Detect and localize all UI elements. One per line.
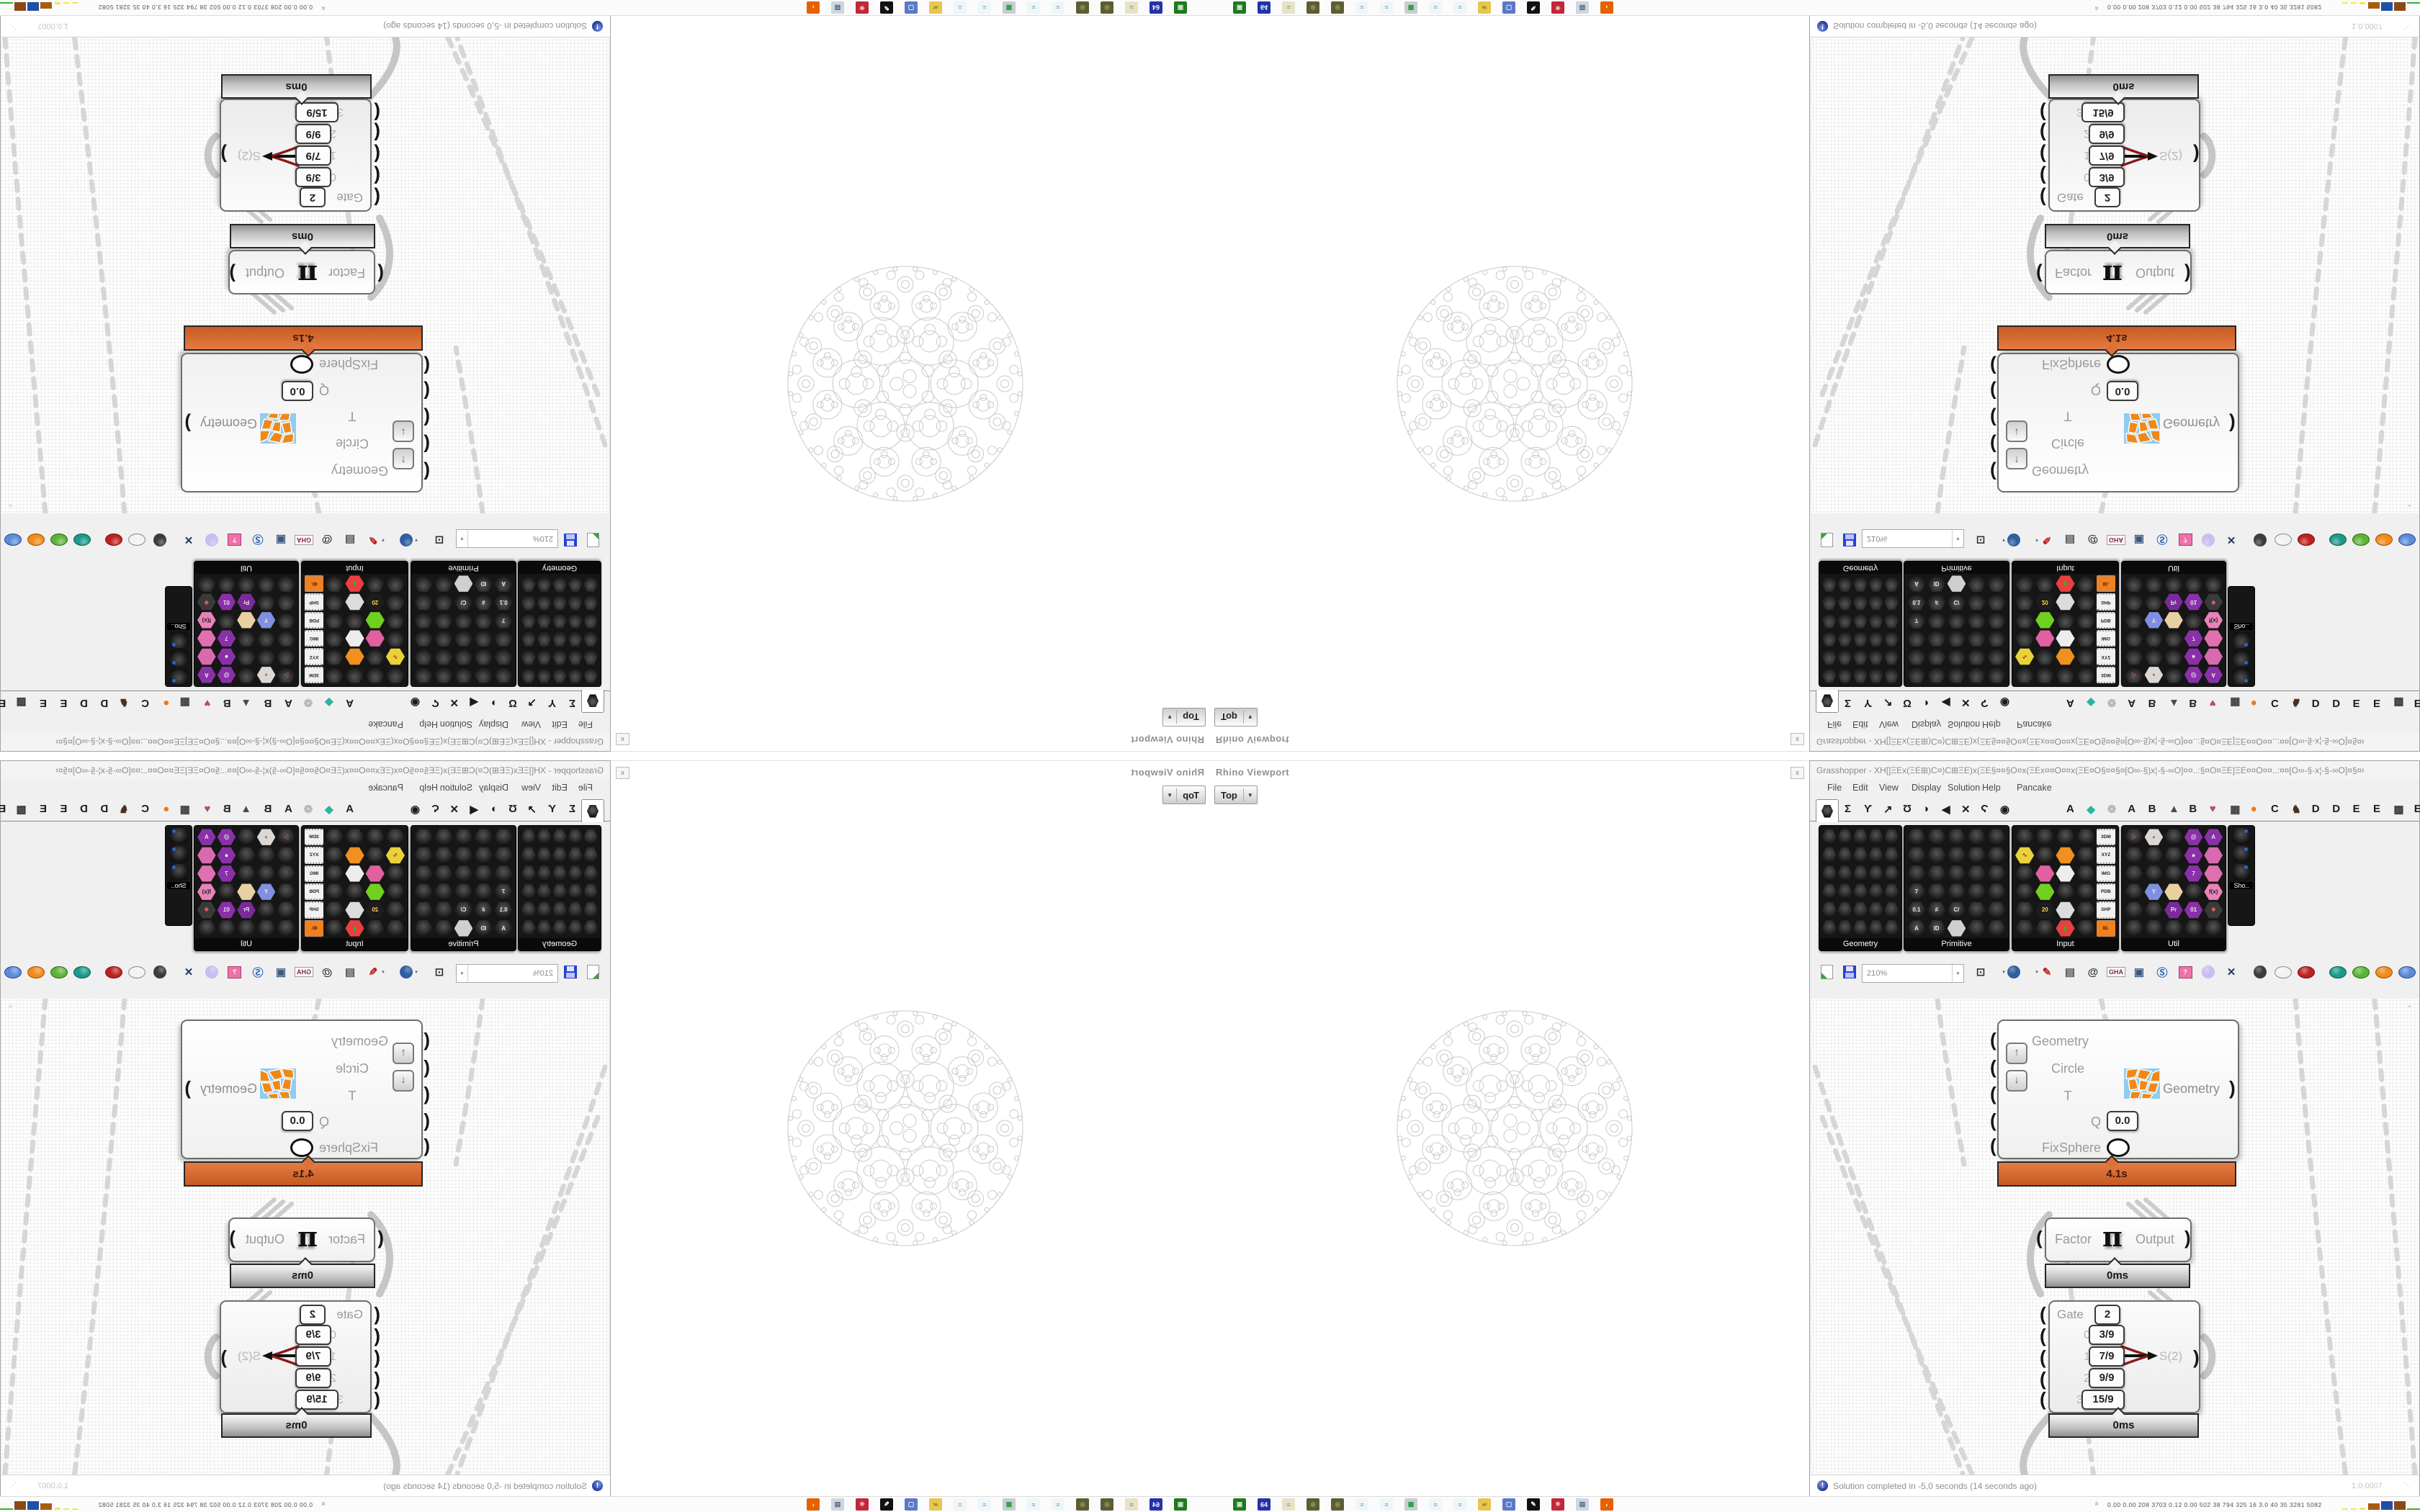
preview-orange-icon[interactable] — [2375, 531, 2393, 549]
menu-item-pancake[interactable]: Pancake — [368, 783, 403, 793]
component-icon[interactable] — [237, 630, 256, 647]
component-icon[interactable]: ● — [257, 667, 276, 683]
component-icon[interactable]: ▷ — [2125, 667, 2143, 683]
component-icon[interactable] — [1822, 847, 1837, 863]
pi-factor-component[interactable]: Factor π Output — [2045, 250, 2192, 294]
component-icon[interactable] — [521, 648, 536, 665]
component-icon[interactable] — [1967, 593, 1986, 610]
tab-glyph-6[interactable]: ✕ — [449, 696, 459, 709]
component-icon[interactable] — [537, 630, 552, 647]
component-icon[interactable] — [1884, 575, 1899, 592]
component-icon[interactable] — [2125, 630, 2143, 647]
component-icon[interactable] — [583, 920, 598, 937]
q-value-box[interactable]: 0.0 — [2107, 381, 2138, 401]
input-grip[interactable]: ( — [2036, 1230, 2043, 1245]
system-monitor-icon[interactable]: ▦ — [1003, 1498, 1016, 1511]
arrow-down-icon[interactable]: ↓ — [393, 420, 414, 442]
component-icon[interactable] — [1838, 575, 1852, 592]
component-icon[interactable] — [1853, 901, 1868, 918]
notepad-icon[interactable]: ≡ — [1380, 1, 1393, 14]
component-icon[interactable] — [434, 612, 453, 629]
tab-letter-16[interactable]: ▩ — [16, 803, 26, 816]
coin-icon[interactable]: ◉ — [1101, 1, 1113, 14]
preview-green-icon[interactable] — [50, 531, 68, 549]
output-grip[interactable]: ) — [229, 1230, 236, 1245]
component-icon[interactable]: ๑ — [2184, 847, 2203, 863]
component-icon[interactable] — [474, 847, 493, 863]
tab-letter-0[interactable]: A — [2066, 697, 2074, 709]
menu-item-file[interactable]: File — [1827, 719, 1842, 729]
tab-glyph-0[interactable]: Σ — [1845, 697, 1851, 709]
output-grip[interactable]: ) — [220, 148, 227, 162]
component-icon[interactable]: 0.1 — [494, 593, 513, 610]
component-icon[interactable] — [1884, 883, 1899, 900]
input-grip[interactable]: ( — [2040, 1372, 2046, 1386]
component-icon[interactable] — [1869, 593, 1883, 610]
component-icon[interactable]: 7 — [494, 612, 513, 629]
preview-blue-icon[interactable] — [4, 531, 22, 549]
component-icon[interactable] — [2035, 847, 2054, 863]
component-icon[interactable] — [2164, 883, 2183, 900]
system-monitor-icon[interactable]: ▦ — [1404, 1498, 1417, 1511]
component-icon[interactable]: ▷ — [2125, 829, 2143, 845]
input-grip[interactable]: ( — [2040, 169, 2046, 184]
menu-item-view[interactable]: View — [1879, 783, 1899, 793]
component-icon[interactable] — [386, 920, 405, 937]
gate-component[interactable]: Gate 2 S(2) 03/917/929/9315/9 — [2048, 99, 2200, 212]
fixsphere-component[interactable]: ↑ ↓ Geometry Circle T Q FixSphere 0.0 — [1997, 353, 2239, 492]
palette-group-label[interactable]: Primitive — [1904, 562, 2009, 574]
coin-icon[interactable]: ◉ — [1307, 1, 1319, 14]
component-icon[interactable] — [2056, 829, 2074, 845]
fixsphere-toggle[interactable] — [290, 1138, 313, 1157]
chevron-down-icon[interactable]: ▾ — [457, 530, 468, 547]
component-icon[interactable]: C/ — [454, 593, 473, 610]
component-icon[interactable] — [494, 667, 513, 683]
component-icon[interactable] — [1838, 920, 1852, 937]
component-icon[interactable] — [366, 612, 385, 629]
component-icon[interactable]: ▮ — [2056, 575, 2074, 592]
palette-group-label[interactable]: Util — [2122, 562, 2226, 574]
viewport-close-button[interactable]: x — [616, 733, 629, 745]
notepad-icon[interactable]: ≡ — [1380, 1498, 1393, 1511]
component-icon[interactable] — [568, 883, 583, 900]
component-icon[interactable] — [1967, 920, 1986, 937]
gate-value-box[interactable]: 2 — [2094, 187, 2120, 207]
input-grip[interactable]: ( — [423, 411, 430, 426]
component-icon[interactable] — [2125, 612, 2143, 629]
component-icon[interactable] — [474, 865, 493, 882]
flyout-icon[interactable] — [2233, 864, 2250, 880]
menu-item-edit[interactable]: Edit — [1852, 719, 1868, 729]
output-grip[interactable]: ) — [2229, 417, 2236, 431]
memory-card-icon[interactable]: ▣ — [1233, 1498, 1246, 1511]
component-icon[interactable] — [2184, 575, 2203, 592]
component-icon[interactable] — [386, 612, 405, 629]
preview-eye-icon[interactable] — [2004, 531, 2023, 549]
component-icon[interactable] — [345, 901, 364, 918]
pen-app-icon[interactable]: ✎ — [1527, 1498, 1540, 1511]
component-icon[interactable]: IMG — [2097, 630, 2115, 647]
gha-badge-icon[interactable]: GHA — [2107, 531, 2125, 549]
component-icon[interactable] — [1838, 593, 1852, 610]
tab-glyph-8[interactable]: ◉ — [2000, 803, 2009, 816]
component-icon[interactable] — [521, 883, 536, 900]
coin-icon[interactable]: ◉ — [1307, 1498, 1319, 1511]
tab-letter-11[interactable]: ♞ — [119, 803, 128, 816]
component-icon[interactable] — [1822, 901, 1837, 918]
tab-glyph-5[interactable]: ◀ — [470, 803, 478, 816]
tab-glyph-8[interactable]: ◉ — [2000, 696, 2009, 709]
component-icon[interactable]: @ — [2184, 667, 2203, 683]
tab-letter-15[interactable]: E — [2373, 803, 2380, 815]
component-icon[interactable] — [257, 901, 276, 918]
component-icon[interactable]: 7 — [2184, 865, 2203, 882]
component-icon[interactable]: f(x) — [197, 883, 216, 900]
component-icon[interactable] — [454, 865, 473, 882]
exit-icon[interactable]: ▤ — [341, 531, 359, 549]
resize-grip-icon[interactable]: ⋱ — [9, 22, 17, 30]
red-app-icon[interactable]: ✳ — [1551, 1498, 1564, 1511]
gate-row-value-box[interactable]: 7/9 — [295, 145, 331, 166]
component-icon[interactable] — [1927, 829, 1946, 845]
component-icon[interactable] — [386, 630, 405, 647]
component-icon[interactable] — [434, 593, 453, 610]
component-icon[interactable]: A — [2204, 667, 2223, 683]
component-icon[interactable] — [325, 575, 344, 592]
resize-grip-icon[interactable]: ⋱ — [2403, 1482, 2411, 1490]
input-grip[interactable]: ( — [374, 169, 380, 184]
component-icon[interactable]: f(x) — [2204, 883, 2223, 900]
component-icon[interactable] — [2076, 883, 2095, 900]
component-icon[interactable] — [1884, 901, 1899, 918]
gate-row-value-box[interactable]: 7/9 — [295, 1346, 331, 1367]
component-icon[interactable] — [1907, 630, 1926, 647]
layers-icon[interactable]: ▣ — [2130, 963, 2148, 981]
component-icon[interactable] — [414, 829, 433, 845]
component-icon[interactable] — [1967, 612, 1986, 629]
package-icon[interactable]: ? — [2176, 963, 2195, 981]
viewport-view-dropdown[interactable]: Top ▼ — [1214, 786, 1258, 804]
component-icon[interactable]: Pr — [2164, 593, 2183, 610]
tab-letter-9[interactable]: ● — [163, 803, 169, 815]
node-canvas[interactable]: ⌄ ↑ ↓ Geometry Circle T Q FixSphere 0.0 — [1811, 999, 2419, 1475]
zoom-level-combo[interactable]: 210% ▾ — [1862, 529, 1964, 548]
search-s-icon[interactable]: Ⓢ — [248, 963, 267, 981]
component-icon[interactable] — [494, 847, 513, 863]
memory-card-icon[interactable]: ▣ — [1233, 1, 1246, 14]
tab-letter-13[interactable]: D — [2332, 803, 2340, 815]
gha-badge-icon[interactable]: GHA — [295, 531, 313, 549]
component-icon[interactable] — [1838, 865, 1852, 882]
input-grip[interactable]: ( — [1990, 1032, 1996, 1047]
component-icon[interactable] — [1948, 630, 1966, 647]
zoom-level-combo[interactable]: 210% ▾ — [456, 529, 558, 548]
component-icon[interactable] — [1853, 593, 1868, 610]
mesh-sphere-dark-icon[interactable] — [2251, 531, 2269, 549]
output-grip[interactable]: ) — [2193, 1350, 2200, 1364]
folder-icon[interactable]: ▰ — [1478, 1, 1491, 14]
component-icon[interactable] — [325, 865, 344, 882]
component-icon[interactable] — [2204, 920, 2223, 937]
component-icon[interactable] — [277, 920, 295, 937]
component-icon[interactable] — [521, 920, 536, 937]
component-icon[interactable] — [1927, 865, 1946, 882]
fixsphere-toggle[interactable] — [2107, 1138, 2130, 1157]
component-icon[interactable] — [1822, 575, 1837, 592]
tab-letter-14[interactable]: E — [2353, 697, 2360, 709]
palette-group-label[interactable]: Input — [2012, 938, 2118, 950]
component-icon[interactable] — [1822, 667, 1837, 683]
component-icon[interactable]: A — [494, 920, 513, 937]
component-icon[interactable] — [1967, 847, 1986, 863]
component-icon[interactable] — [1822, 612, 1837, 629]
component-icon[interactable] — [2145, 593, 2164, 610]
component-icon[interactable] — [568, 593, 583, 610]
component-icon[interactable] — [386, 575, 405, 592]
tab-glyph-8[interactable]: ◉ — [411, 696, 420, 709]
notepad-icon[interactable]: ≡ — [1027, 1, 1040, 14]
viewport-close-button[interactable]: x — [616, 767, 629, 779]
component-icon[interactable] — [414, 593, 433, 610]
component-icon[interactable] — [537, 575, 552, 592]
gha-badge-icon[interactable]: GHA — [295, 963, 313, 981]
input-grip[interactable]: ( — [374, 1350, 380, 1364]
red-app-icon[interactable]: ✳ — [856, 1498, 869, 1511]
component-icon[interactable] — [414, 920, 433, 937]
menu-item-edit[interactable]: Edit — [552, 783, 568, 793]
input-grip[interactable]: ( — [1990, 1113, 1996, 1128]
component-icon[interactable] — [494, 865, 513, 882]
tab-glyph-1[interactable]: Ƴ — [1864, 803, 1873, 815]
input-grip[interactable]: ( — [2040, 1392, 2046, 1406]
palette-group-label[interactable]: Primitive — [1904, 938, 2009, 950]
component-icon[interactable] — [277, 847, 295, 863]
component-icon[interactable]: PDB — [2097, 883, 2115, 900]
menu-item-solution[interactable]: Solution — [440, 783, 472, 793]
component-icon[interactable] — [325, 901, 344, 918]
component-icon[interactable] — [237, 829, 256, 845]
component-icon[interactable] — [494, 630, 513, 647]
viewport-close-button[interactable]: x — [1791, 767, 1804, 779]
tab-glyph-7[interactable]: Ϛ — [431, 803, 439, 815]
save-button[interactable] — [1840, 531, 1859, 549]
fixsphere-component[interactable]: ↑ ↓ Geometry Circle T Q FixSphere 0.0 — [181, 1020, 423, 1159]
component-icon[interactable] — [1948, 575, 1966, 592]
flyout-icon[interactable] — [2233, 828, 2250, 844]
maximize-button[interactable] — [14, 764, 28, 777]
menu-item-view[interactable]: View — [1879, 719, 1899, 729]
close-button[interactable] — [2405, 735, 2419, 748]
gate-value-box[interactable]: 2 — [300, 1305, 326, 1325]
component-icon[interactable] — [537, 612, 552, 629]
component-icon[interactable] — [1967, 667, 1986, 683]
component-icon[interactable]: 20 — [2035, 901, 2054, 918]
tab-letter-3[interactable]: A — [2128, 803, 2136, 815]
system-monitor-icon[interactable]: ▦ — [1003, 1, 1016, 14]
tab-glyph-1[interactable]: Ƴ — [547, 803, 556, 815]
tab-letter-11[interactable]: ♞ — [119, 696, 128, 709]
input-grip[interactable]: ( — [2040, 1350, 2046, 1364]
component-icon[interactable] — [2015, 883, 2034, 900]
component-icon[interactable]: ∿ — [2015, 847, 2034, 863]
component-icon[interactable] — [1822, 648, 1837, 665]
component-icon[interactable] — [537, 593, 552, 610]
component-icon[interactable]: IMG — [305, 630, 323, 647]
component-icon[interactable]: ๑ — [218, 648, 236, 665]
component-icon[interactable] — [1927, 612, 1946, 629]
tab-letter-3[interactable]: A — [2128, 697, 2136, 709]
input-grip[interactable]: ( — [2040, 126, 2046, 140]
zoom-level-combo[interactable]: 210% ▾ — [1862, 964, 1964, 983]
gem-red-icon[interactable] — [2297, 531, 2316, 549]
output-grip[interactable]: ) — [229, 267, 236, 282]
arrow-down-icon[interactable]: ↓ — [2006, 420, 2027, 442]
tab-letter-7[interactable]: ♥ — [2210, 803, 2216, 815]
component-icon[interactable] — [2125, 648, 2143, 665]
menu-item-pancake[interactable]: Pancake — [2017, 783, 2052, 793]
component-icon[interactable] — [2164, 865, 2183, 882]
component-icon[interactable] — [2015, 920, 2034, 937]
grasshopper-titlebar[interactable]: Grasshopper - XH[]ΞEx(ΞE⊞)C¤)C⊞ΞE)x(ΞE§¤… — [1, 761, 610, 780]
component-icon[interactable] — [277, 883, 295, 900]
component-icon[interactable] — [521, 847, 536, 863]
component-icon[interactable]: A — [494, 575, 513, 592]
component-icon[interactable]: 01 — [2184, 901, 2203, 918]
component-icon[interactable]: ID — [474, 575, 493, 592]
component-icon[interactable]: ID. — [2097, 575, 2115, 592]
tab-letter-15[interactable]: E — [40, 803, 47, 815]
component-icon[interactable] — [257, 593, 276, 610]
viewport-close-button[interactable]: x — [1791, 733, 1804, 745]
arrow-down-icon[interactable]: ↓ — [393, 1070, 414, 1092]
component-icon[interactable] — [345, 648, 364, 665]
component-icon[interactable]: C/ — [1948, 901, 1966, 918]
tab-letter-5[interactable]: ▲ — [241, 803, 251, 815]
component-icon[interactable] — [474, 667, 493, 683]
component-icon[interactable] — [386, 829, 405, 845]
component-icon[interactable] — [1869, 575, 1883, 592]
notepad-icon[interactable]: ≡ — [1453, 1498, 1466, 1511]
input-grip[interactable]: ( — [374, 191, 380, 205]
package-icon[interactable]: ? — [225, 531, 244, 549]
balloon-icon[interactable] — [2199, 963, 2218, 981]
component-icon[interactable]: ▮ — [2056, 920, 2074, 937]
component-icon[interactable] — [521, 575, 536, 592]
tab-letter-17[interactable]: E — [2414, 803, 2420, 815]
tab-letter-17[interactable]: E — [0, 803, 6, 815]
component-icon[interactable] — [2076, 575, 2095, 592]
mesh-sphere-dark-icon[interactable] — [151, 963, 169, 981]
component-icon[interactable] — [434, 630, 453, 647]
component-icon[interactable] — [568, 667, 583, 683]
galapagos-x-icon[interactable]: ✕ — [179, 531, 198, 549]
component-icon[interactable]: 7 — [218, 630, 236, 647]
folder-icon[interactable]: ▰ — [929, 1498, 942, 1511]
mesh-sphere-dark-icon[interactable] — [2251, 963, 2269, 981]
component-icon[interactable] — [1822, 883, 1837, 900]
minimize-button[interactable] — [2379, 764, 2393, 777]
menu-item-help[interactable]: Help — [1982, 719, 2001, 729]
notepad-icon[interactable]: ≡ — [1355, 1, 1368, 14]
component-icon[interactable] — [2145, 630, 2164, 647]
component-icon[interactable]: ID — [1927, 920, 1946, 937]
component-icon[interactable] — [552, 920, 567, 937]
notepad-icon[interactable]: ≡ — [1453, 1, 1466, 14]
component-icon[interactable] — [2015, 630, 2034, 647]
component-icon[interactable] — [583, 575, 598, 592]
component-icon[interactable] — [1853, 575, 1868, 592]
at-icon[interactable]: @ — [2084, 963, 2102, 981]
tab-letter-7[interactable]: ♥ — [204, 803, 210, 815]
tab-letter-10[interactable]: C — [2271, 803, 2279, 815]
component-icon[interactable] — [568, 901, 583, 918]
component-icon[interactable]: Y — [2145, 883, 2164, 900]
component-icon[interactable] — [2076, 901, 2095, 918]
component-icon[interactable] — [552, 575, 567, 592]
component-icon[interactable] — [2035, 920, 2054, 937]
component-icon[interactable] — [1822, 865, 1837, 882]
component-icon[interactable] — [277, 630, 295, 647]
coin-icon[interactable]: ◉ — [1076, 1, 1089, 14]
tab-letter-1[interactable]: ◆ — [325, 696, 333, 709]
tab-letter-1[interactable]: ◆ — [325, 803, 333, 816]
component-icon[interactable] — [583, 648, 598, 665]
pen-app-icon[interactable]: ✎ — [880, 1, 893, 14]
tab-glyph-0[interactable]: Σ — [1845, 803, 1851, 815]
component-icon[interactable] — [237, 648, 256, 665]
component-icon[interactable] — [2125, 901, 2143, 918]
preview-blue-icon[interactable] — [2398, 963, 2416, 981]
menu-item-edit[interactable]: Edit — [1852, 783, 1868, 793]
component-icon[interactable] — [277, 612, 295, 629]
tab-letter-9[interactable]: ● — [2251, 803, 2257, 815]
component-icon[interactable] — [474, 883, 493, 900]
maximize-button[interactable] — [2392, 735, 2406, 748]
tab-letter-11[interactable]: ♞ — [2291, 696, 2300, 709]
folder-icon[interactable]: ▰ — [1478, 1498, 1491, 1511]
package-icon[interactable]: ? — [225, 963, 244, 981]
component-icon[interactable] — [414, 847, 433, 863]
component-icon[interactable] — [568, 630, 583, 647]
tab-letter-6[interactable]: B — [2189, 803, 2197, 815]
component-icon[interactable]: SHP — [305, 901, 323, 918]
component-icon[interactable] — [366, 847, 385, 863]
input-grip[interactable]: ( — [1990, 465, 1996, 480]
component-icon[interactable] — [1838, 901, 1852, 918]
component-icon[interactable] — [366, 865, 385, 882]
tab-letter-2[interactable]: ❁ — [2107, 696, 2117, 709]
component-icon[interactable] — [583, 667, 598, 683]
component-icon[interactable]: IMG — [2097, 865, 2115, 882]
component-icon[interactable]: 7 — [2184, 630, 2203, 647]
component-icon[interactable] — [1948, 847, 1966, 863]
component-icon[interactable]: C/ — [1948, 593, 1966, 610]
input-grip[interactable]: ( — [374, 106, 380, 120]
component-icon[interactable] — [1838, 630, 1852, 647]
component-icon[interactable] — [583, 865, 598, 882]
component-icon[interactable] — [1967, 901, 1986, 918]
calculator-icon[interactable]: ▤ — [1576, 1498, 1589, 1511]
component-icon[interactable]: 3DM — [305, 667, 323, 683]
component-icon[interactable] — [1838, 612, 1852, 629]
minimize-button[interactable] — [2379, 735, 2393, 748]
component-icon[interactable] — [1927, 648, 1946, 665]
fixsphere-toggle[interactable] — [2107, 355, 2130, 374]
component-icon[interactable] — [521, 630, 536, 647]
component-icon[interactable] — [197, 847, 216, 863]
component-icon[interactable] — [1869, 865, 1883, 882]
